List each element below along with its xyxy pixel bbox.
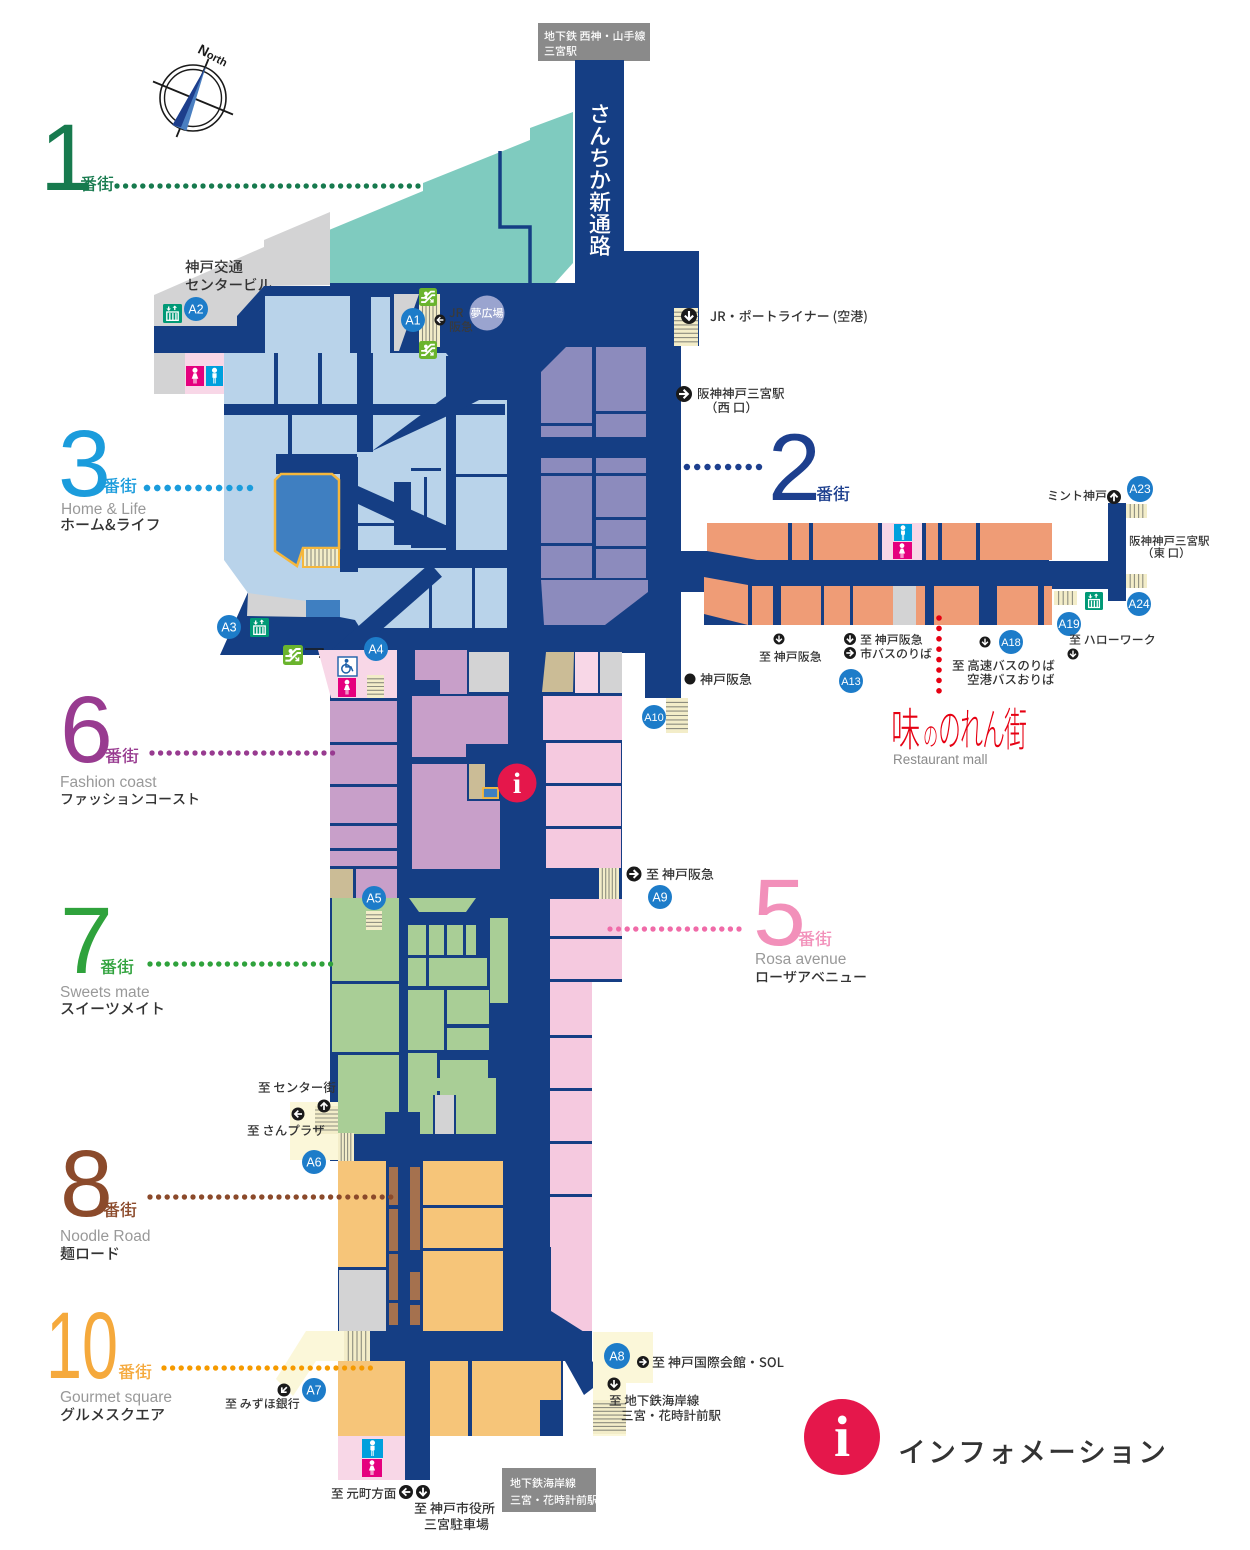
svg-text:A7: A7 <box>306 1383 321 1397</box>
svg-text:A19: A19 <box>1058 617 1080 631</box>
svg-text:1: 1 <box>40 105 93 211</box>
svg-text:i: i <box>513 767 521 800</box>
svg-text:A23: A23 <box>1129 482 1151 496</box>
svg-text:A18: A18 <box>1001 637 1021 649</box>
svg-text:Sweets mate: Sweets mate <box>60 984 150 1001</box>
svg-text:A6: A6 <box>306 1155 321 1169</box>
svg-text:A3: A3 <box>221 620 236 634</box>
svg-text:A1: A1 <box>405 313 420 327</box>
svg-text:A5: A5 <box>366 891 381 905</box>
svg-text:A10: A10 <box>644 712 664 724</box>
svg-text:10: 10 <box>46 1293 118 1399</box>
svg-text:A4: A4 <box>368 642 383 656</box>
svg-text:Gourmet square: Gourmet square <box>60 1389 172 1406</box>
svg-text:8: 8 <box>60 1131 113 1237</box>
svg-text:Home & Life: Home & Life <box>61 501 146 518</box>
svg-text:7: 7 <box>60 888 113 994</box>
svg-text:Restaurant mall: Restaurant mall <box>893 752 988 767</box>
svg-text:A13: A13 <box>841 676 861 688</box>
svg-text:Fashion coast: Fashion coast <box>60 774 157 791</box>
svg-text:2: 2 <box>768 415 821 521</box>
svg-text:6: 6 <box>60 677 113 783</box>
svg-text:A2: A2 <box>188 302 203 316</box>
svg-text:i: i <box>834 1404 850 1469</box>
svg-text:A9: A9 <box>652 890 667 904</box>
svg-text:A8: A8 <box>609 1349 624 1363</box>
svg-text:Noodle Road: Noodle Road <box>60 1228 150 1245</box>
svg-text:A24: A24 <box>1128 597 1150 611</box>
svg-text:Rosa avenue: Rosa avenue <box>755 951 846 968</box>
